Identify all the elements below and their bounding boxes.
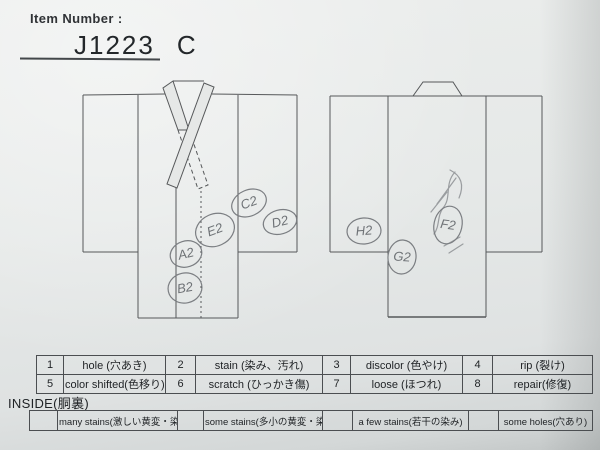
defect-label: scratch (ひっかき傷) xyxy=(196,375,323,394)
defect-label: loose (ほつれ) xyxy=(351,375,463,394)
defect-mark-label-e2: E2 xyxy=(205,220,226,240)
defect-num: 6 xyxy=(166,375,196,394)
defect-label: color shifted(色移り) xyxy=(64,375,166,394)
defect-legend-table: 1 hole (穴あき) 2 stain (染み、汚れ) 3 discolor … xyxy=(36,355,593,394)
front-defect-labels: A2 B2 C2 D2 E2 xyxy=(175,192,290,296)
inside-condition-table: many stains(激しい黄変・染み) some stains(多小の黄変・… xyxy=(29,410,593,431)
inside-checkbox-cell xyxy=(469,411,499,431)
pencil-scribbles xyxy=(431,170,463,253)
inspection-sheet-photo: Item Number : J1223C xyxy=(0,0,600,450)
defect-num: 5 xyxy=(37,375,64,394)
collar-band-left-upper xyxy=(163,81,189,130)
defect-num: 8 xyxy=(463,375,493,394)
defect-num: 7 xyxy=(323,375,351,394)
back-defect-marks xyxy=(346,204,466,276)
defect-label: repair(修復) xyxy=(493,375,593,394)
inside-option: some holes(穴あり) xyxy=(499,411,593,431)
defect-row-1: 1 hole (穴あき) 2 stain (染み、汚れ) 3 discolor … xyxy=(37,356,593,375)
defect-num: 2 xyxy=(166,356,196,375)
defect-mark-label-b2: B2 xyxy=(176,279,195,297)
defect-num: 3 xyxy=(323,356,351,375)
defect-mark-label-f2: F2 xyxy=(440,216,458,233)
inside-option: a few stains(若干の染み) xyxy=(353,411,469,431)
defect-label: hole (穴あき) xyxy=(64,356,166,375)
defect-label: discolor (色やけ) xyxy=(351,356,463,375)
defect-num: 1 xyxy=(37,356,64,375)
inside-checkbox-cell xyxy=(178,411,204,431)
inside-option: many stains(激しい黄変・染み) xyxy=(58,411,178,431)
inside-checkbox-cell xyxy=(30,411,58,431)
defect-mark-label-d2: D2 xyxy=(270,212,291,231)
inside-option: some stains(多小の黄変・染み) xyxy=(204,411,323,431)
defect-mark-label-c2: C2 xyxy=(238,192,259,212)
back-collar xyxy=(413,82,462,96)
defect-mark-label-h2: H2 xyxy=(355,222,373,238)
defect-mark-label-g2: G2 xyxy=(393,248,412,264)
defect-num: 4 xyxy=(463,356,493,375)
kimono-back-diagram xyxy=(330,82,542,317)
inside-checkbox-cell xyxy=(323,411,353,431)
inside-row: many stains(激しい黄変・染み) some stains(多小の黄変・… xyxy=(30,411,593,431)
defect-label: stain (染み、汚れ) xyxy=(196,356,323,375)
defect-label: rip (裂け) xyxy=(493,356,593,375)
defect-mark-label-a2: A2 xyxy=(175,244,196,263)
defect-row-2: 5 color shifted(色移り) 6 scratch (ひっかき傷) 7… xyxy=(37,375,593,394)
